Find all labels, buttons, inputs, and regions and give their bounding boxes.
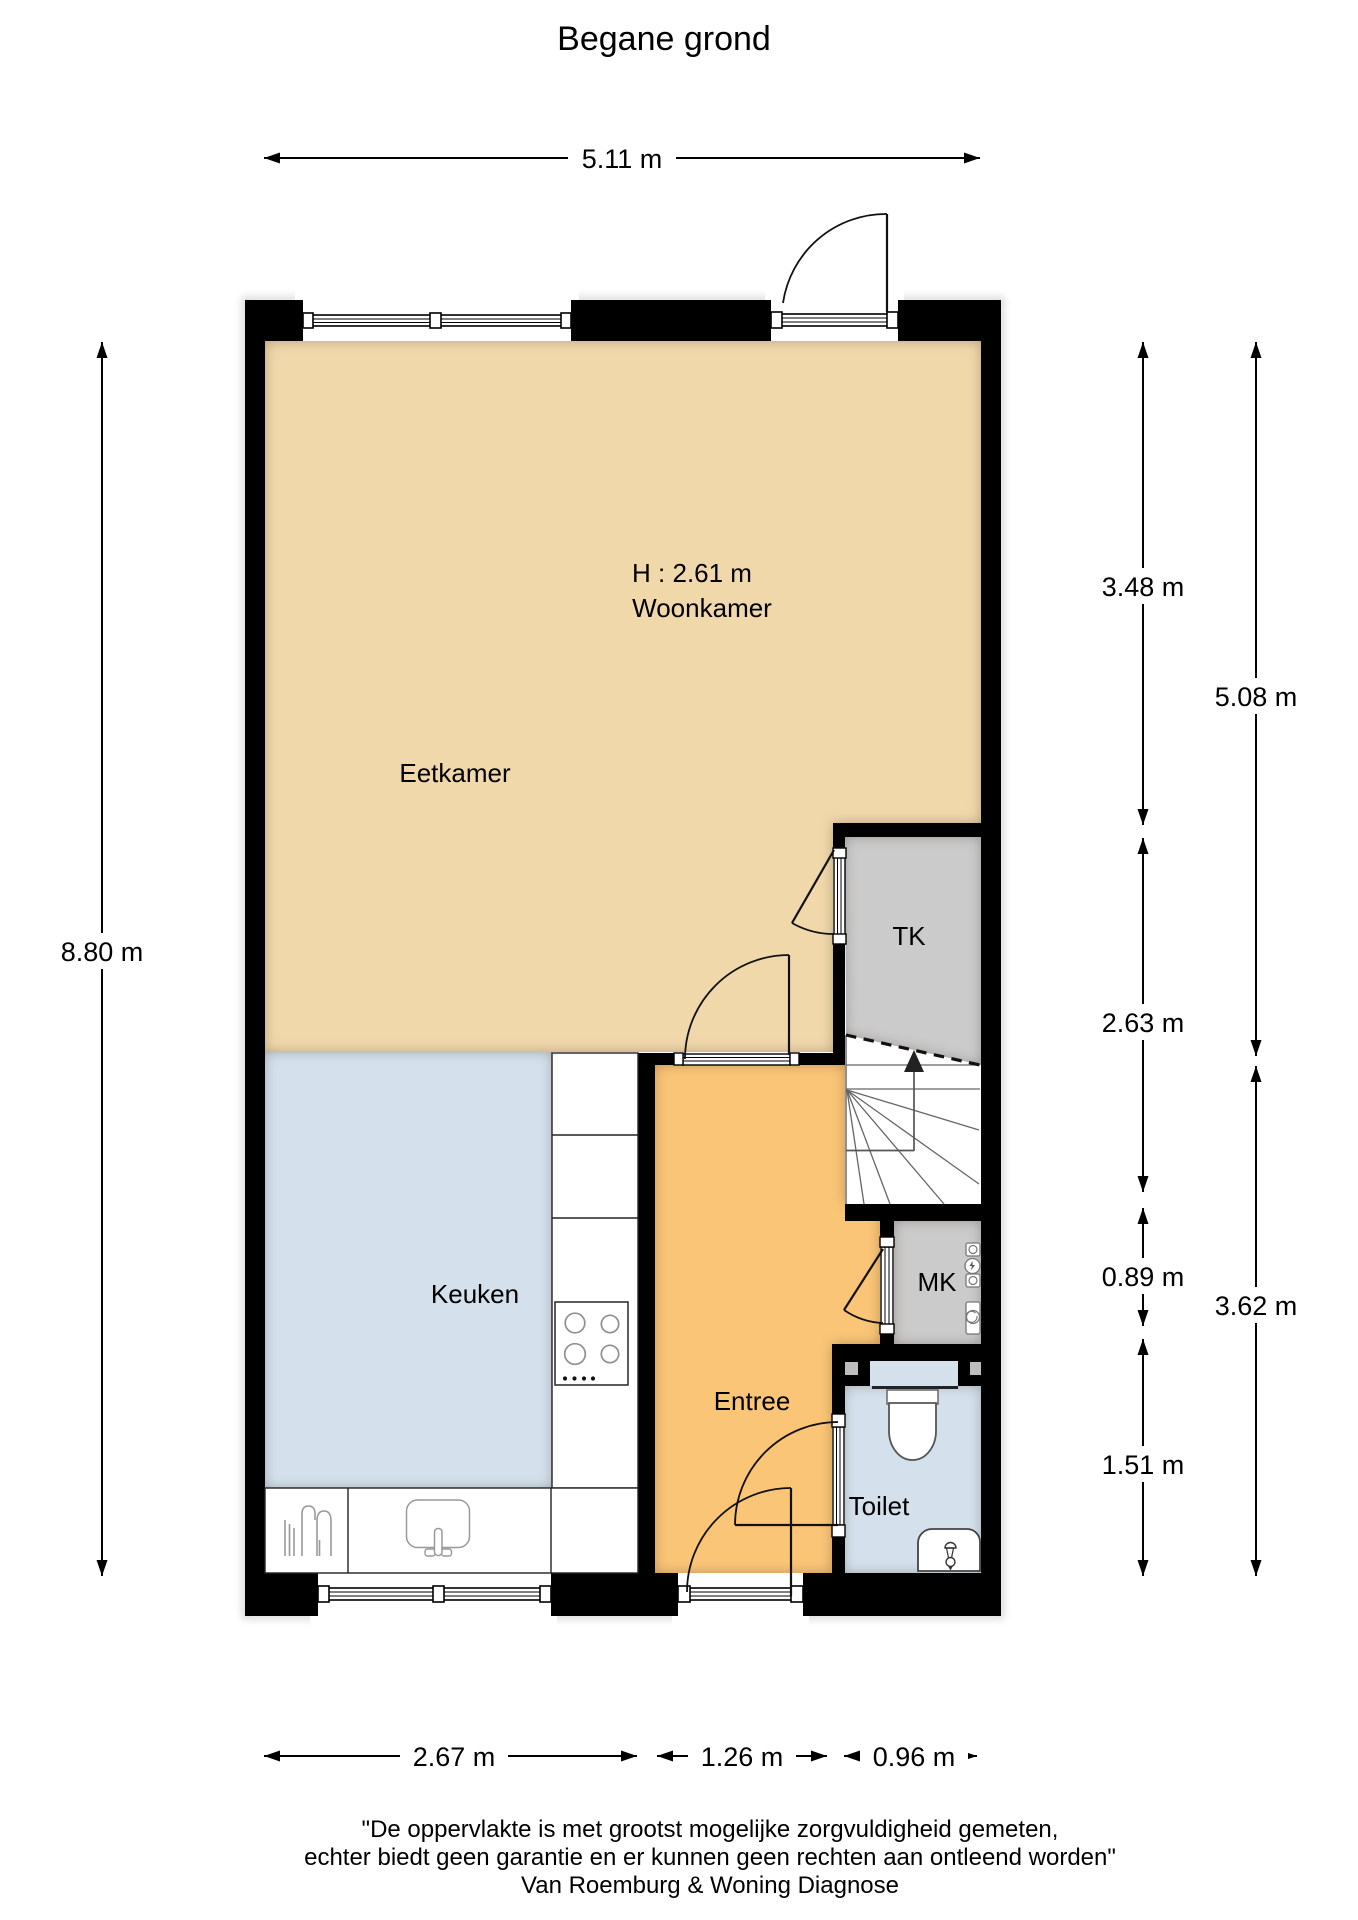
svg-text:echter biedt geen garantie en: echter biedt geen garantie en er kunnen … <box>304 1844 1116 1871</box>
svg-text:MK: MK <box>918 1267 958 1297</box>
svg-text:Eetkamer: Eetkamer <box>399 758 511 788</box>
svg-text:Entree: Entree <box>714 1386 791 1416</box>
svg-text:8.80 m: 8.80 m <box>61 937 144 967</box>
svg-text:0.89 m: 0.89 m <box>1102 1262 1185 1292</box>
svg-text:1.26 m: 1.26 m <box>701 1742 784 1772</box>
svg-text:Van Roemburg & Woning Diagnose: Van Roemburg & Woning Diagnose <box>521 1872 899 1899</box>
svg-text:Woonkamer: Woonkamer <box>632 593 772 623</box>
svg-text:5.08 m: 5.08 m <box>1215 682 1298 712</box>
svg-text:Toilet: Toilet <box>849 1491 910 1521</box>
svg-text:3.48 m: 3.48 m <box>1102 572 1185 602</box>
svg-text:Keuken: Keuken <box>431 1279 519 1309</box>
svg-text:Begane grond: Begane grond <box>557 20 771 58</box>
svg-text:TK: TK <box>892 921 926 951</box>
svg-text:0.96 m: 0.96 m <box>873 1742 956 1772</box>
svg-text:1.51 m: 1.51 m <box>1102 1450 1185 1480</box>
svg-text:3.62 m: 3.62 m <box>1215 1291 1298 1321</box>
svg-text:"De oppervlakte is met grootst: "De oppervlakte is met grootst mogelijke… <box>362 1816 1059 1843</box>
svg-text:2.63 m: 2.63 m <box>1102 1008 1185 1038</box>
svg-text:H : 2.61 m: H : 2.61 m <box>632 558 752 588</box>
svg-text:2.67 m: 2.67 m <box>413 1742 496 1772</box>
svg-text:5.11 m: 5.11 m <box>582 144 663 174</box>
